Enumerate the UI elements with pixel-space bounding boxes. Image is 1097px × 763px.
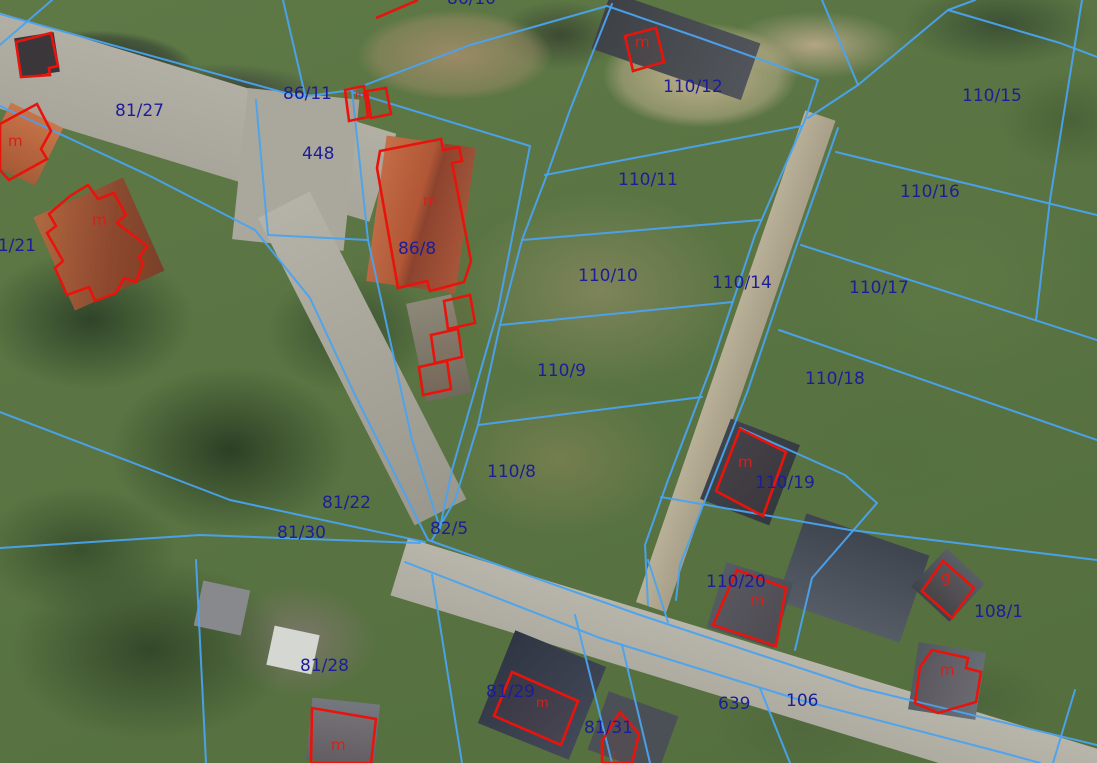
parcel-label-110-8: 110/8 bbox=[487, 464, 536, 481]
parcel-label-110-20: 110/20 bbox=[706, 574, 766, 591]
label-layer: 86/1081/2786/1144886/881/21110/12110/111… bbox=[0, 0, 1097, 763]
building-use-label: m bbox=[738, 455, 753, 470]
parcel-label-82-5: 82/5 bbox=[430, 521, 468, 538]
parcel-label-106: 106 bbox=[786, 693, 818, 710]
parcel-label-81-30: 81/30 bbox=[277, 525, 326, 542]
parcel-label-86-10: 86/10 bbox=[447, 0, 496, 8]
parcel-label-81-21: 81/21 bbox=[0, 238, 36, 255]
building-use-label: m bbox=[940, 663, 955, 678]
parcel-label-110-15: 110/15 bbox=[962, 88, 1022, 105]
building-use-label: m bbox=[635, 35, 650, 50]
parcel-label-81-22: 81/22 bbox=[322, 495, 371, 512]
parcel-label-448: 448 bbox=[302, 146, 334, 163]
building-use-label: m bbox=[355, 91, 365, 101]
building-use-label: m bbox=[750, 593, 765, 608]
parcel-label-81-28: 81/28 bbox=[300, 658, 349, 675]
parcel-label-639: 639 bbox=[718, 696, 750, 713]
parcel-label-81-29: 81/29 bbox=[486, 684, 535, 701]
parcel-label-110-17: 110/17 bbox=[849, 280, 909, 297]
parcel-label-86-8: 86/8 bbox=[398, 241, 436, 258]
building-use-label: m bbox=[536, 697, 549, 710]
building-use-label: m bbox=[92, 213, 107, 228]
parcel-label-108-1: 108/1 bbox=[974, 604, 1023, 621]
parcel-label-110-11: 110/11 bbox=[618, 172, 678, 189]
building-use-label: t bbox=[612, 750, 617, 762]
parcel-label-110-16: 110/16 bbox=[900, 184, 960, 201]
parcel-label-110-18: 110/18 bbox=[805, 371, 865, 388]
map-canvas[interactable]: 86/1081/2786/1144886/881/21110/12110/111… bbox=[0, 0, 1097, 763]
building-use-label: g bbox=[941, 570, 951, 585]
parcel-label-86-11: 86/11 bbox=[283, 86, 332, 103]
parcel-label-81-31: 81/31 bbox=[584, 720, 633, 737]
building-use-label: m bbox=[423, 194, 438, 209]
parcel-label-110-14: 110/14 bbox=[712, 275, 772, 292]
parcel-label-110-12: 110/12 bbox=[663, 79, 723, 96]
building-use-label: m bbox=[8, 134, 23, 149]
parcel-label-110-19: 110/19 bbox=[755, 475, 815, 492]
parcel-label-110-9: 110/9 bbox=[537, 363, 586, 380]
parcel-label-81-27: 81/27 bbox=[115, 103, 164, 120]
parcel-label-110-10: 110/10 bbox=[578, 268, 638, 285]
building-use-label: m bbox=[331, 738, 346, 753]
